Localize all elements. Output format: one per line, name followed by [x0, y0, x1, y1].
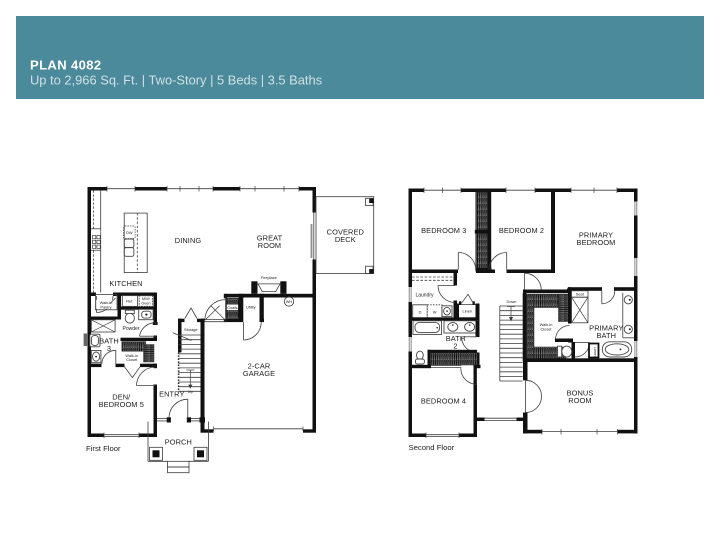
- svg-text:DECK: DECK: [335, 235, 356, 244]
- svg-text:Storage: Storage: [184, 327, 198, 332]
- svg-text:PLAN 4082: PLAN 4082: [30, 58, 102, 73]
- svg-text:3: 3: [107, 344, 111, 353]
- svg-text:BEDROOM: BEDROOM: [577, 238, 616, 247]
- svg-text:WH: WH: [286, 299, 293, 304]
- svg-text:KITCHEN: KITCHEN: [109, 279, 142, 288]
- svg-text:Fireplace: Fireplace: [261, 275, 277, 280]
- svg-text:DINING: DINING: [175, 236, 202, 245]
- svg-text:Coats: Coats: [227, 305, 237, 310]
- svg-text:Closet: Closet: [126, 357, 138, 362]
- svg-text:PORCH: PORCH: [165, 437, 192, 446]
- svg-text:Oven: Oven: [141, 300, 150, 305]
- svg-text:Up: Up: [188, 389, 193, 394]
- svg-text:Ref.: Ref.: [126, 299, 133, 304]
- svg-text:Linen: Linen: [463, 309, 473, 314]
- svg-text:Up to 2,966 Sq. Ft. | Two-Stor: Up to 2,966 Sq. Ft. | Two-Story | 5 Beds…: [30, 73, 322, 88]
- svg-text:BEDROOM 3: BEDROOM 3: [421, 226, 466, 235]
- svg-text:Down: Down: [507, 299, 517, 304]
- svg-text:Laundry: Laundry: [415, 293, 434, 299]
- svg-text:Pantry: Pantry: [100, 304, 111, 309]
- svg-text:Seat: Seat: [576, 292, 585, 297]
- svg-text:BEDROOM 2: BEDROOM 2: [499, 226, 544, 235]
- svg-text:BEDROOM 5: BEDROOM 5: [99, 400, 144, 409]
- svg-text:Closet: Closet: [540, 327, 552, 332]
- svg-text:GARAGE: GARAGE: [243, 369, 275, 378]
- svg-text:BATH: BATH: [597, 331, 617, 340]
- svg-text:First Floor: First Floor: [86, 444, 121, 453]
- svg-text:ENTRY: ENTRY: [159, 390, 184, 399]
- svg-text:DW: DW: [126, 230, 133, 235]
- svg-text:Utility: Utility: [246, 304, 256, 309]
- svg-text:ROOM: ROOM: [258, 241, 281, 250]
- svg-text:2: 2: [453, 342, 457, 351]
- svg-text:Powder: Powder: [123, 326, 140, 332]
- svg-text:D: D: [419, 309, 422, 314]
- svg-text:ROOM: ROOM: [568, 396, 591, 405]
- svg-text:BEDROOM 4: BEDROOM 4: [421, 397, 466, 406]
- svg-text:Second Floor: Second Floor: [409, 443, 455, 452]
- svg-text:Linen: Linen: [593, 347, 598, 357]
- svg-text:W: W: [433, 309, 437, 314]
